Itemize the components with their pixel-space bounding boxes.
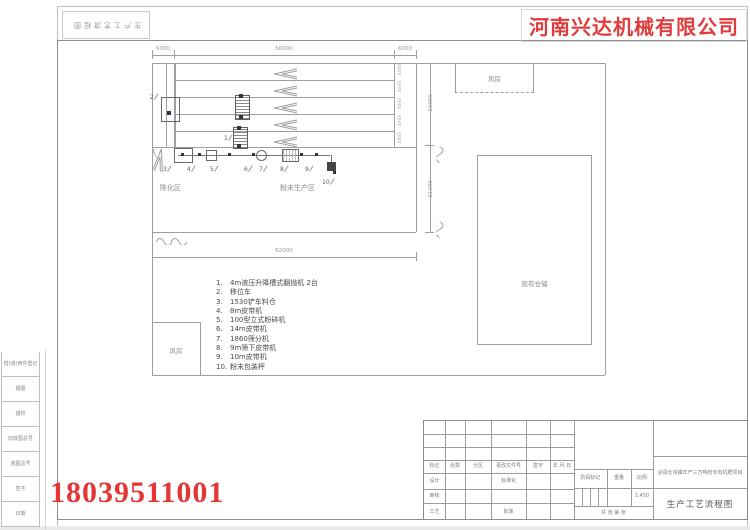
equipment-list-item: 1. 4m液压升降槽式翻抛机 2台 <box>216 279 366 288</box>
equipment-name: 8m皮带机 <box>230 307 262 316</box>
equipment-list-item: 9. 10m皮带机 <box>216 353 366 362</box>
conveyor-dot <box>228 153 231 156</box>
conveyor-dot <box>198 153 201 156</box>
callout-number: 9 <box>305 166 316 173</box>
title-block: 标记 处数 分区 更改文件号 签字 年.月.日 设计 标准化 审核 工艺 批准 … <box>423 420 748 520</box>
dim-tick <box>425 145 434 146</box>
existing-storage: 现有仓储 <box>477 155 592 345</box>
machine-node <box>239 94 243 98</box>
tb-line <box>424 503 574 504</box>
equipment-name: 14m皮带机 <box>230 325 267 334</box>
dim-tick <box>425 63 434 64</box>
tb-label-biaoji: 标记 <box>424 461 445 471</box>
dim-21000-lower: 21000 <box>428 172 434 206</box>
equipment-number: 9. <box>216 353 230 362</box>
leader-line <box>228 134 233 140</box>
scan-edge <box>0 526 750 530</box>
callout-number: 7 <box>259 166 270 173</box>
leader-line <box>263 165 268 171</box>
top-stamp-text: 生产工艺流程图 <box>71 20 141 30</box>
screener <box>256 150 267 161</box>
tb-label-fenqu: 分区 <box>465 461 491 471</box>
leader-line <box>154 93 159 99</box>
tb-label-review: 审核 <box>424 491 445 501</box>
tb-label-standardization: 标准化 <box>491 476 526 486</box>
equipment-list-item: 2. 移位车 <box>216 288 366 297</box>
machine-node <box>237 126 241 130</box>
equipment-name: 9m筛下皮带机 <box>230 344 276 353</box>
equipment-number: 10. <box>216 363 230 372</box>
building-wall-bottom <box>152 232 416 233</box>
yard-wall-right <box>605 63 606 375</box>
callout-number: 4 <box>187 166 198 173</box>
dim-50000: 50000 <box>254 46 314 52</box>
equipment-name: 10m皮带机 <box>230 353 267 362</box>
dim-line-bottom <box>152 257 416 258</box>
conveyor-dot <box>333 171 336 174</box>
tb-label-gengai: 更改文件号 <box>491 461 526 471</box>
shifting-car <box>161 97 180 122</box>
tb-label-chushu: 处数 <box>445 461 465 471</box>
callout-number: 1 <box>224 135 235 142</box>
under-screen-belt <box>282 149 299 162</box>
break-mark <box>156 230 172 249</box>
break-mark <box>433 147 452 163</box>
tb-line <box>582 488 583 506</box>
packing-scale <box>327 162 336 171</box>
tb-label-stage: 阶段标记 <box>574 473 607 483</box>
margin-stamp-cell: 旧底图总号 <box>1 427 40 452</box>
tb-line <box>424 489 574 490</box>
equipment-list: 1. 4m液压升降槽式翻抛机 2台 2. 移位车 3. 1530铲车料仓 4. … <box>216 279 366 372</box>
tb-line <box>590 488 591 506</box>
lane-dim-label: 4000 <box>398 98 403 109</box>
leader-line <box>191 165 196 171</box>
tb-line <box>598 488 599 506</box>
conveyor-dot <box>252 153 255 156</box>
dim-line-top <box>152 55 416 56</box>
leader-line <box>248 165 253 171</box>
equipment-name: 移位车 <box>230 288 251 297</box>
crusher <box>206 150 217 161</box>
dim-21000-upper: 21000 <box>428 86 434 120</box>
tb-label-process: 工艺 <box>424 507 445 517</box>
tb-line <box>424 434 574 435</box>
equipment-number: 4. <box>216 307 230 316</box>
margin-stamp-cell: 底图总号 <box>1 452 40 477</box>
equipment-number: 7. <box>216 335 230 344</box>
tb-drawing-title: 生产工艺流程图 <box>653 488 747 519</box>
tb-label-scale: 比例 <box>631 473 653 483</box>
lane-dim-label: 4000 <box>398 64 403 75</box>
leader-line <box>330 178 335 184</box>
lane-dim-label: 4000 <box>398 81 403 92</box>
fan-room-top-label: 风房 <box>488 73 501 83</box>
machine-node <box>237 144 241 148</box>
yard-wall-bottom <box>152 375 605 376</box>
tb-label-weight: 重量 <box>607 473 631 483</box>
tb-scale-value: 1:450 <box>631 491 653 501</box>
equipment-number: 2. <box>216 288 230 297</box>
binding-margin-stamps: 借(通)用件登记描图描校旧底图总号底图总号签字日期 <box>1 352 40 527</box>
tb-line <box>424 473 574 474</box>
equipment-name: 1530铲车料仓 <box>230 298 276 307</box>
margin-stamp-cell: 日期 <box>1 502 40 527</box>
fan-room-left: 风房 <box>152 322 201 376</box>
company-banner: 河南兴达机械有限公司 <box>521 9 747 42</box>
leader-line <box>214 165 219 171</box>
dim-tick <box>152 252 153 261</box>
fan-room-left-label: 风房 <box>170 345 183 355</box>
equipment-name: 粉末包装秤 <box>230 363 265 372</box>
tb-line <box>574 469 653 470</box>
equipment-number: 3. <box>216 298 230 307</box>
tb-line <box>424 447 574 448</box>
machine-node <box>239 115 243 119</box>
equipment-number: 1. <box>216 279 230 288</box>
equipment-list-item: 6. 14m皮带机 <box>216 325 366 334</box>
existing-storage-label: 现有仓储 <box>522 278 548 288</box>
equipment-name: 1860筛分机 <box>230 335 269 344</box>
leader-line <box>284 165 289 171</box>
lane-dim-label: 4000 <box>398 115 403 126</box>
conveyor-dot <box>315 153 318 156</box>
equipment-list-item: 7. 1860筛分机 <box>216 335 366 344</box>
tb-label-date: 年.月.日 <box>550 461 574 471</box>
callout-number: 6 <box>244 166 255 173</box>
phone-watermark: 18039511001 <box>50 476 224 510</box>
equipment-list-item: 8. 9m筛下皮带机 <box>216 344 366 353</box>
dim-62000: 62000 <box>252 248 316 254</box>
tb-label-qianzi: 签字 <box>526 461 550 471</box>
equipment-list-item: 4. 8m皮带机 <box>216 307 366 316</box>
fan-room-top: 风房 <box>455 63 534 93</box>
lane-dim-label: 4000 <box>398 132 403 143</box>
conveyor-dot <box>181 153 184 156</box>
equipment-number: 5. <box>216 316 230 325</box>
powder-area-label: 粉末生产区 <box>280 183 315 193</box>
callout-number: 8 <box>280 166 291 173</box>
break-mark <box>433 222 452 238</box>
company-name: 河南兴达机械有限公司 <box>529 11 739 40</box>
trim-line <box>45 350 46 530</box>
leader-line <box>167 165 172 171</box>
conveyor-dot <box>300 153 303 156</box>
top-stamp-box: 生产工艺流程图 <box>62 11 150 39</box>
tb-sheets-line: 共 张 第 张 <box>574 508 653 518</box>
drawing-sheet: 借(通)用件登记描图描校旧底图总号底图总号签字日期 生产工艺流程图 河南兴达机械… <box>0 0 750 530</box>
equipment-number: 8. <box>216 344 230 353</box>
break-mark <box>171 230 187 249</box>
equipment-list-item: 3. 1530铲车料仓 <box>216 298 366 307</box>
callout-number: 5 <box>210 166 221 173</box>
yard-wall-top <box>152 63 605 64</box>
tb-label-design: 设计 <box>424 476 445 486</box>
tb-line <box>574 488 653 489</box>
leader-line <box>309 165 314 171</box>
callout-number: 10 <box>322 179 337 186</box>
tb-project-name: 泌县长沟镇年产三万吨粉末有机肥项目 <box>653 456 747 488</box>
dim-6000-right: 6000 <box>393 46 417 52</box>
lane-end-right <box>394 63 395 147</box>
aging-area-label: 陈化区 <box>160 183 181 193</box>
equipment-number: 6. <box>216 325 230 334</box>
tb-line <box>574 506 653 507</box>
margin-stamp-cell: 借(通)用件登记 <box>1 352 40 377</box>
tb-line <box>574 421 575 519</box>
building-wall-right <box>416 63 417 232</box>
shifting-car-dot <box>167 111 171 115</box>
margin-stamp-cell: 描校 <box>1 402 40 427</box>
dim-tick <box>425 232 434 233</box>
callout-number: 3 <box>163 166 174 173</box>
tb-label-approve: 批准 <box>491 507 526 517</box>
callout-number: 2 <box>150 94 161 101</box>
dim-tick <box>416 252 417 261</box>
margin-stamp-cell: 描图 <box>1 377 40 402</box>
equipment-name: 4m液压升降槽式翻抛机 2台 <box>230 279 318 288</box>
equipment-list-item: 10. 粉末包装秤 <box>216 363 366 372</box>
dim-6000-left: 6000 <box>151 46 175 52</box>
margin-stamp-cell: 签字 <box>1 477 40 502</box>
